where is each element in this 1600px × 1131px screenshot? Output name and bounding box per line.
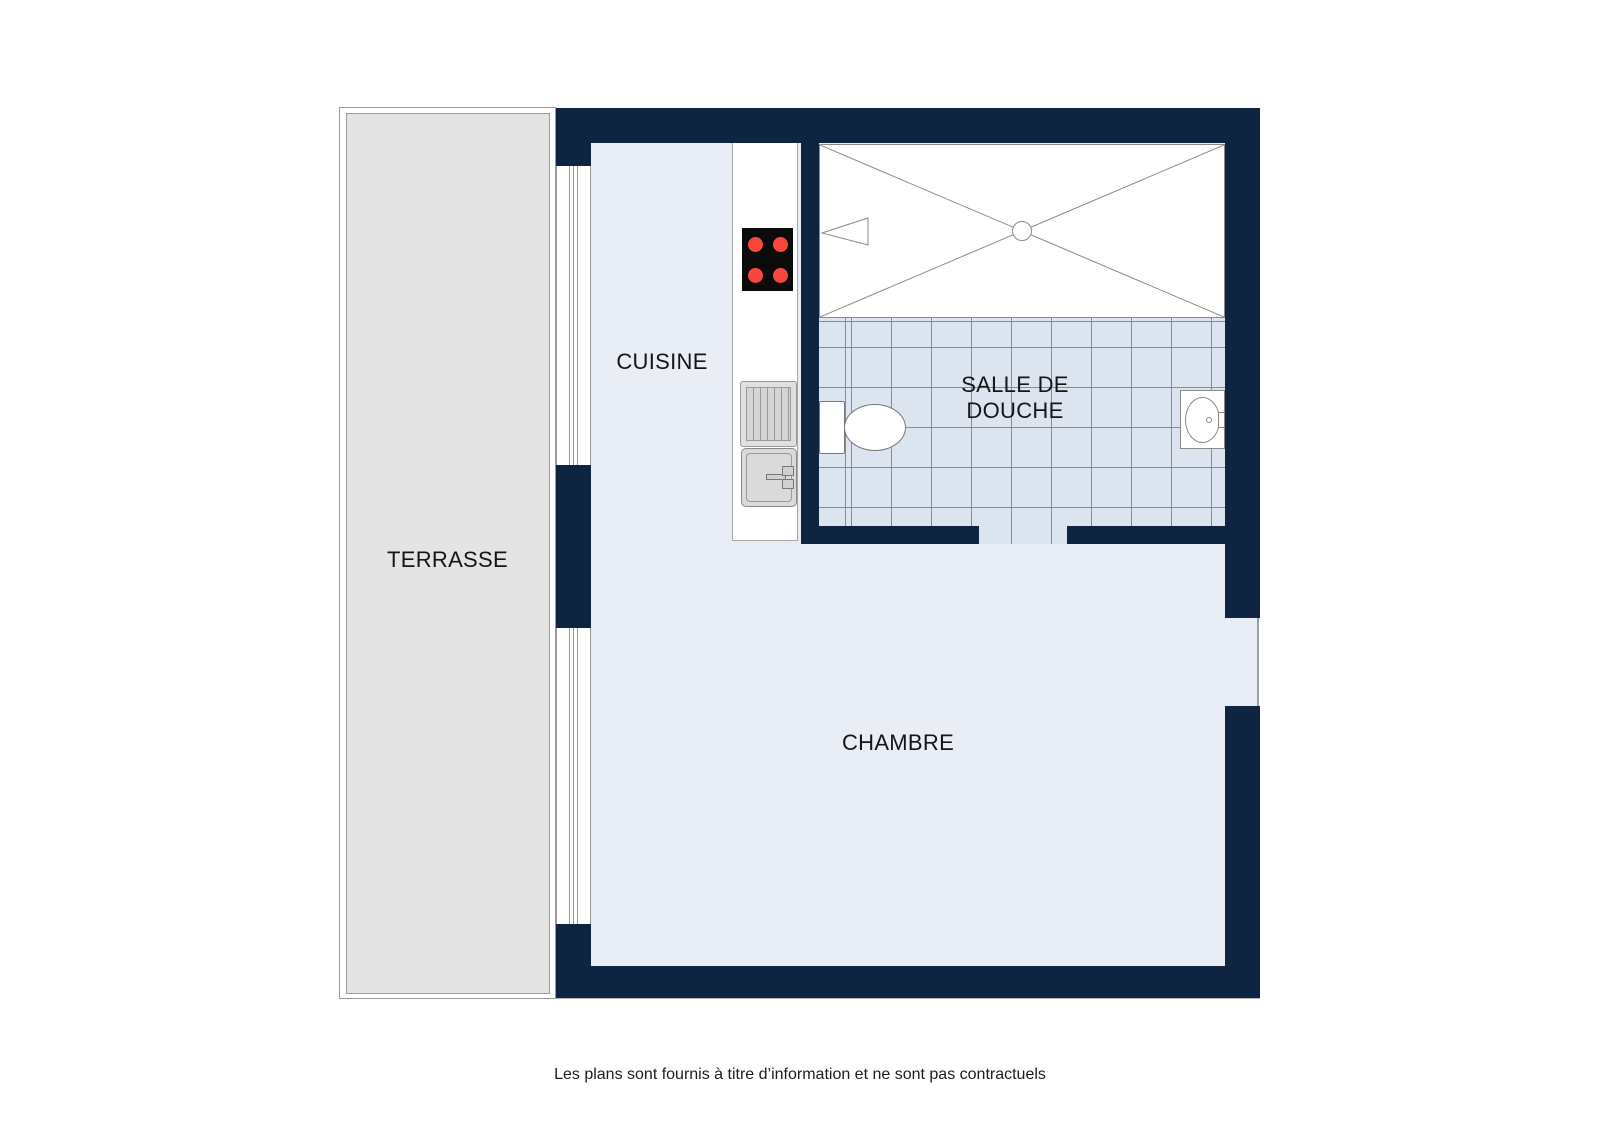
washbasin-bowl-icon xyxy=(1185,397,1220,443)
burner-icon xyxy=(748,237,763,252)
burner-icon xyxy=(773,237,788,252)
bathroom-wall-left xyxy=(801,143,819,526)
wall-left-middle xyxy=(556,465,591,628)
bathroom-wall-bottom-left xyxy=(801,526,979,544)
dish-drainer-icon xyxy=(740,381,797,447)
terrasse-label: TERRASSE xyxy=(339,547,556,573)
salle-de-douche-label: SALLE DE DOUCHE xyxy=(949,372,1081,424)
wall-right-lower xyxy=(1225,706,1260,998)
cuisine-label: CUISINE xyxy=(591,349,733,375)
building-outer-edge-line xyxy=(556,998,1260,999)
stove-icon xyxy=(742,228,793,291)
faucet-handle-icon xyxy=(782,466,794,476)
shower-tray-icon xyxy=(819,144,1225,318)
disclaimer-text: Les plans sont fournis à titre d’informa… xyxy=(0,1066,1600,1084)
entry-door-opening xyxy=(1225,618,1259,706)
washbasin-drain-icon xyxy=(1206,417,1212,423)
wall-top xyxy=(556,108,1260,143)
chambre-label: CHAMBRE xyxy=(798,730,998,756)
floor-plan-page: TERRASSE CUISINE SALLE DE DOUCHE CHAMBRE… xyxy=(0,0,1600,1131)
burner-icon xyxy=(748,268,763,283)
faucet-handle-icon xyxy=(782,479,794,489)
shower-cross-icon xyxy=(820,145,1224,317)
window-icon xyxy=(556,166,591,465)
dish-drainer-grill xyxy=(746,387,791,441)
burner-icon xyxy=(773,268,788,283)
wall-left-upper xyxy=(556,108,591,166)
toilet-tank-icon xyxy=(819,401,845,454)
bathroom-wall-bottom-right xyxy=(1067,526,1225,544)
wall-bottom xyxy=(556,966,1260,998)
wall-right-upper xyxy=(1225,108,1260,618)
toilet-bowl-icon xyxy=(844,404,906,451)
window-icon xyxy=(556,628,591,924)
washbasin-tap-icon xyxy=(1218,412,1225,428)
